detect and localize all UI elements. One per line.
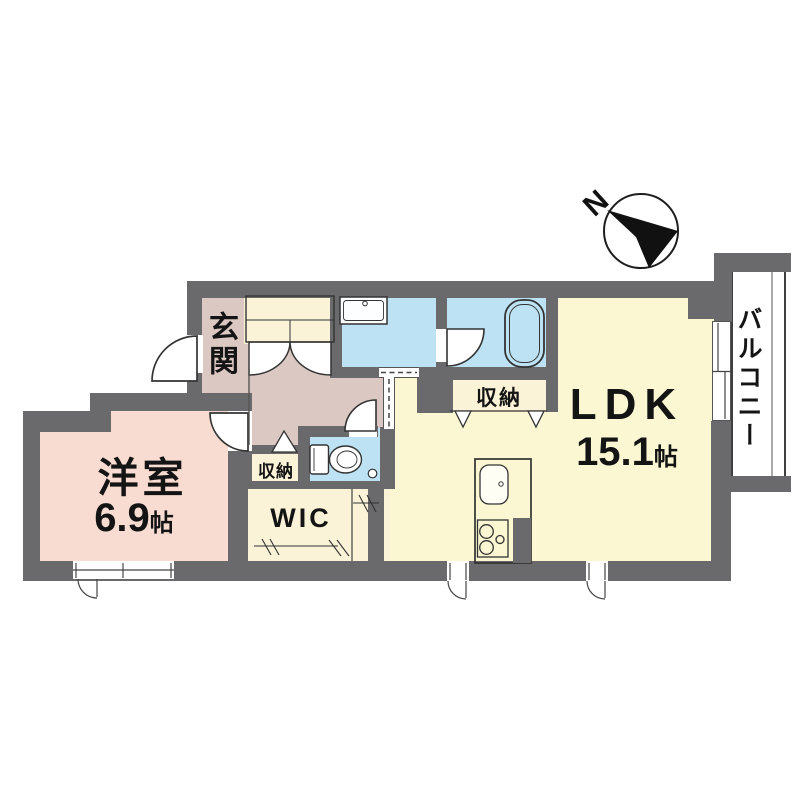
ldk-storage-label: 収納 xyxy=(458,382,540,412)
hall-storage-fold-mark xyxy=(272,431,297,452)
ldk-window-left-icon xyxy=(448,563,466,599)
compass: N xyxy=(577,184,678,268)
western-room-label: 洋室 xyxy=(75,444,210,504)
kitchen-duct-block xyxy=(513,518,531,563)
entrance-door-icon xyxy=(152,336,197,381)
entrance-label: 玄関 xyxy=(204,302,242,388)
gas-stove xyxy=(478,520,509,557)
kitchen-sink xyxy=(480,465,508,504)
toilet-fixture xyxy=(310,445,377,478)
hall-storage-label: 収納 xyxy=(243,457,309,482)
ldk-window-right-icon xyxy=(587,563,605,599)
balcony-sliding-door-icon xyxy=(712,323,731,419)
bathtub xyxy=(505,300,544,367)
ldk-size: 15.1帖 xyxy=(552,430,702,475)
wic-label: WIC xyxy=(246,503,356,534)
toilet-door-icon xyxy=(345,400,376,431)
vanity-sink xyxy=(340,297,387,324)
bedroom-door-icon xyxy=(210,413,248,451)
bedroom-window-icon xyxy=(73,563,174,598)
closet-double-door-icon xyxy=(249,342,331,375)
floorplan: N xyxy=(0,0,800,800)
closet-outline xyxy=(246,296,334,342)
balcony-label: バルコニー xyxy=(736,283,766,473)
ldk-label: LDK xyxy=(556,380,698,430)
western-room-size-unit: 帖 xyxy=(150,510,174,537)
ldk-size-value: 15.1 xyxy=(576,430,654,474)
western-room-size: 6.9帖 xyxy=(60,496,208,541)
toilet-paper-holder-icon xyxy=(368,469,377,478)
western-room-size-value: 6.9 xyxy=(94,496,150,540)
ldk-size-unit: 帖 xyxy=(654,444,678,471)
kitchen-counter xyxy=(475,459,531,563)
bathroom-door-icon xyxy=(447,329,484,366)
